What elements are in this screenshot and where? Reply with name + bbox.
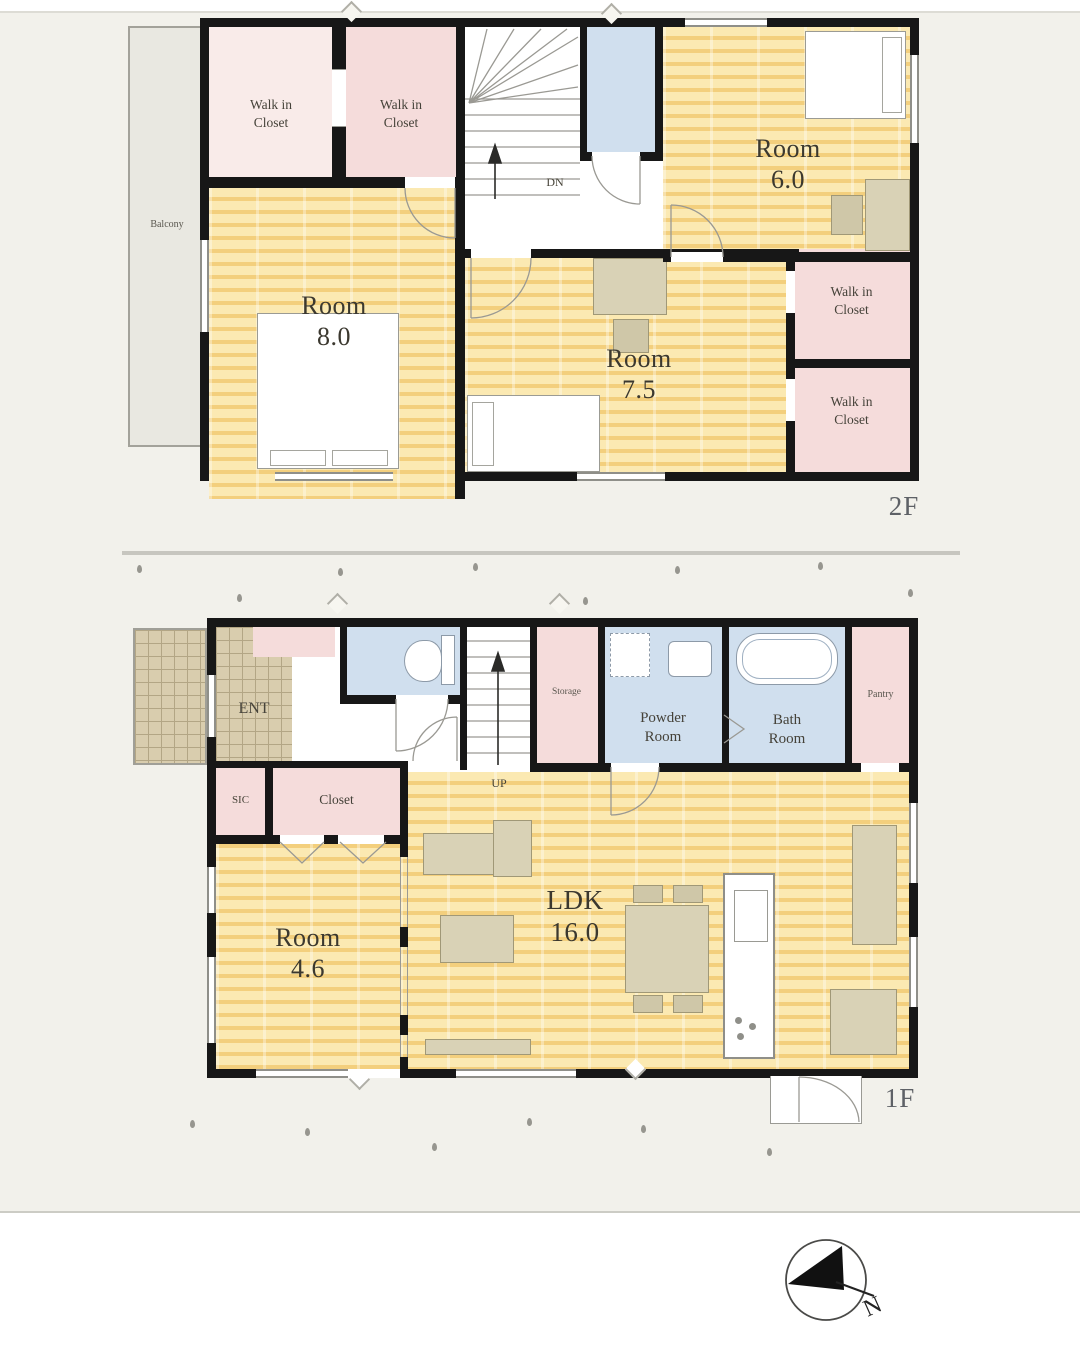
room-46-label: Room 4.6 xyxy=(216,922,400,986)
speck xyxy=(237,594,242,602)
speck xyxy=(473,563,478,571)
door-opening xyxy=(671,252,723,262)
wall xyxy=(530,763,909,772)
dining-chair xyxy=(673,995,703,1013)
closet-opening xyxy=(338,835,384,844)
entry-door-recess xyxy=(770,1076,862,1124)
walk-in-closet-label: Walk in Closet xyxy=(799,389,904,433)
storage-label: Storage xyxy=(535,685,598,699)
speck xyxy=(305,1128,310,1136)
closet-label: Closet xyxy=(273,790,400,810)
speck xyxy=(527,1118,532,1126)
balcony-label: Balcony xyxy=(130,216,204,232)
partition-post xyxy=(400,1057,408,1069)
kitchen-counter xyxy=(723,873,775,1059)
room-8-label: Room 8.0 xyxy=(234,289,434,355)
window xyxy=(685,18,767,27)
bottom-hairline xyxy=(0,1211,1080,1213)
toilet-bowl xyxy=(404,640,442,682)
kitchen-sink xyxy=(734,890,768,942)
ldk-label: LDK 16.0 xyxy=(480,882,670,952)
washing-machine xyxy=(610,633,650,677)
pillow xyxy=(472,402,494,466)
peak-mark xyxy=(549,593,570,614)
tv-board xyxy=(425,1039,531,1055)
floorplan-canvas: Balcony xyxy=(0,0,1080,1350)
sofa xyxy=(493,820,532,877)
closet-opening xyxy=(280,835,324,844)
speck xyxy=(190,1120,195,1128)
speck xyxy=(641,1125,646,1133)
speck xyxy=(767,1148,772,1156)
dining-chair xyxy=(633,995,663,1013)
sic-label: SIC xyxy=(216,791,265,809)
pillow xyxy=(270,450,326,466)
door-opening xyxy=(861,763,899,772)
cabinet xyxy=(830,989,897,1055)
window xyxy=(577,472,665,481)
window xyxy=(909,803,918,883)
stove-burner xyxy=(749,1023,756,1030)
wall xyxy=(400,761,408,842)
sliding-door-opening xyxy=(332,69,346,127)
speck xyxy=(432,1143,437,1151)
partition-post xyxy=(400,835,408,857)
powder-room-label: Powder Room xyxy=(606,705,720,751)
speck xyxy=(675,566,680,574)
stairs-down-label: DN xyxy=(533,173,577,191)
toilet-tank xyxy=(441,635,455,685)
window xyxy=(275,472,393,481)
speck xyxy=(137,565,142,573)
balcony: Balcony xyxy=(128,26,206,447)
second-floor-plan: Walk in Closet Walk in Closet Walk in Cl… xyxy=(200,18,919,481)
balcony-door xyxy=(200,240,209,332)
wall xyxy=(580,27,587,159)
wall xyxy=(722,627,729,763)
speck xyxy=(338,568,343,576)
walk-in-closet-label: Walk in Closet xyxy=(217,93,325,135)
door-opening xyxy=(611,763,659,772)
first-floor-plan: ENT SIC Closet UP Storage Powder Room Ba… xyxy=(207,618,918,1078)
desk xyxy=(593,258,667,315)
window xyxy=(909,937,918,1007)
door-opening xyxy=(592,152,640,161)
speck xyxy=(583,597,588,605)
sliding-door xyxy=(456,1069,576,1078)
window xyxy=(256,1069,348,1078)
door-opening xyxy=(471,249,531,258)
sofa xyxy=(423,833,495,875)
bottom-white-band xyxy=(0,1213,1080,1350)
bath-room-label: Bath Room xyxy=(731,707,843,753)
partition-post xyxy=(400,1015,408,1035)
closet-opening xyxy=(786,271,795,313)
entrance-closet xyxy=(253,627,335,657)
entrance-label: ENT xyxy=(224,697,284,721)
room-6-label: Room 6.0 xyxy=(688,131,888,199)
stove-burner xyxy=(735,1017,742,1024)
wall xyxy=(795,359,910,368)
door-opening xyxy=(396,695,448,704)
first-floor-label: 1F xyxy=(868,1080,932,1116)
bed xyxy=(805,31,906,119)
dining-chair xyxy=(673,885,703,903)
bathtub xyxy=(736,633,838,685)
wall xyxy=(216,761,408,768)
floor-divider-line xyxy=(122,551,960,555)
wall xyxy=(598,627,605,763)
entrance-door xyxy=(207,675,216,737)
speck xyxy=(818,562,823,570)
partition-post xyxy=(400,927,408,947)
toilet-room-2f xyxy=(587,27,655,152)
wall xyxy=(460,627,467,770)
entrance-porch xyxy=(133,628,207,765)
pillow xyxy=(332,450,388,466)
room-75-label: Room 7.5 xyxy=(539,343,739,407)
washbasin xyxy=(668,641,712,677)
wall xyxy=(456,27,465,177)
walk-in-closet-label: Walk in Closet xyxy=(799,279,904,323)
closet-opening xyxy=(786,379,795,421)
window xyxy=(207,867,216,913)
walk-in-closet-label: Walk in Closet xyxy=(351,93,451,135)
wall xyxy=(340,627,347,695)
cupboard xyxy=(852,825,897,945)
chair xyxy=(831,195,863,235)
pillow xyxy=(882,37,902,113)
stairs-up-label: UP xyxy=(480,775,518,791)
wall xyxy=(455,188,465,499)
stove-burner xyxy=(737,1033,744,1040)
door-opening xyxy=(405,177,455,188)
wall xyxy=(265,768,273,835)
window xyxy=(207,957,216,1043)
wall xyxy=(655,27,663,159)
top-hairline xyxy=(0,11,1080,13)
top-white-band xyxy=(0,0,1080,11)
peak-mark xyxy=(327,593,348,614)
wall xyxy=(845,627,852,763)
speck xyxy=(908,589,913,597)
pantry-label: Pantry xyxy=(852,687,909,701)
window xyxy=(910,55,919,143)
second-floor-label: 2F xyxy=(874,488,934,524)
